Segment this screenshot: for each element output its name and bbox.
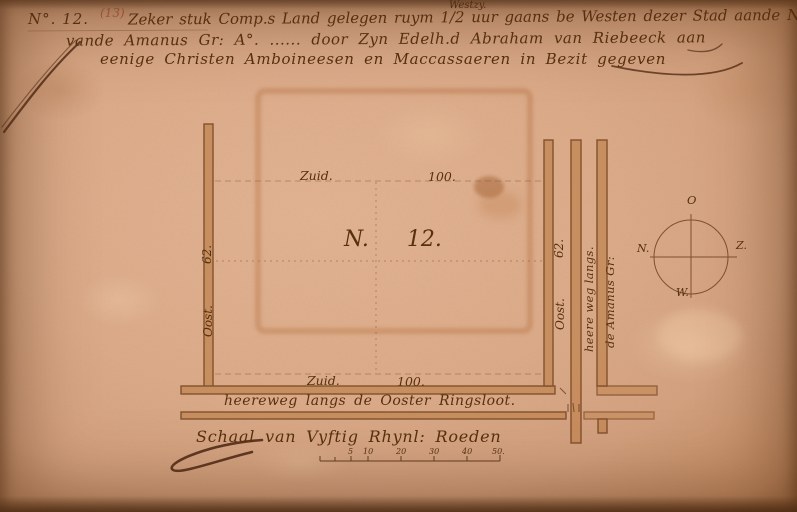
road-heereweg-band	[571, 140, 581, 443]
plot-top-side-value: 100.	[428, 170, 456, 184]
plot-right-side-value: 62.	[553, 239, 566, 258]
compass-label-west: W.	[676, 287, 689, 299]
alternate-number: (13)	[100, 7, 125, 20]
scale-tick-20: 20	[396, 448, 406, 457]
title-line-3: eenige Christen Amboineesen en Maccassae…	[100, 51, 666, 68]
scale-tick-30: 30	[429, 448, 439, 457]
road-east-horizontal	[597, 386, 657, 395]
map-number: N°. 12.	[28, 11, 89, 28]
scale-tick-5: 5	[348, 448, 353, 457]
road-name-amanus-gracht: de Amanus Gr:	[604, 256, 617, 348]
scale-label: Schaal van Vyftig Rhynl: Roeden	[196, 428, 501, 446]
plot-left-side-label: Oost.	[202, 305, 215, 337]
compass-label-south: Z.	[736, 240, 747, 252]
title-line-2: vande Amanus Gr: A°. ...... door Zyn Ede…	[66, 29, 706, 49]
road-plot-right-edge	[544, 140, 553, 386]
plot-number: N.12.	[344, 228, 442, 252]
plot-left-side-value: 62.	[201, 245, 214, 264]
scale-tick-10: 10	[363, 448, 373, 457]
plot-bottom-side-value: 100.	[397, 375, 425, 389]
road-name-heereweg-langs: heere weg langs.	[583, 246, 596, 352]
scale-tick-40: 40	[462, 448, 472, 457]
map-sheet: N°. 12. (13) Westzy. Zeker stuk Comp.s L…	[0, 0, 797, 512]
road-name-ooster-ringsloot: heereweg langs de Ooster Ringsloot.	[224, 394, 516, 409]
road-bottom-lower-band	[181, 412, 566, 419]
plot-bottom-side-label: Zuid.	[307, 374, 340, 388]
compass-label-north: N.	[637, 243, 649, 255]
plot-number-prefix: N.	[344, 227, 369, 252]
compass-label-east: O	[687, 194, 696, 207]
road-bottom-lower-band-east	[584, 412, 654, 419]
plot-number-value: 12.	[407, 227, 442, 252]
plot-top-side-label: Zuid.	[300, 169, 333, 183]
road-amanus-stub	[598, 419, 607, 433]
plot-right-side-label: Oost.	[554, 298, 567, 330]
scale-tick-50: 50.	[492, 448, 505, 457]
